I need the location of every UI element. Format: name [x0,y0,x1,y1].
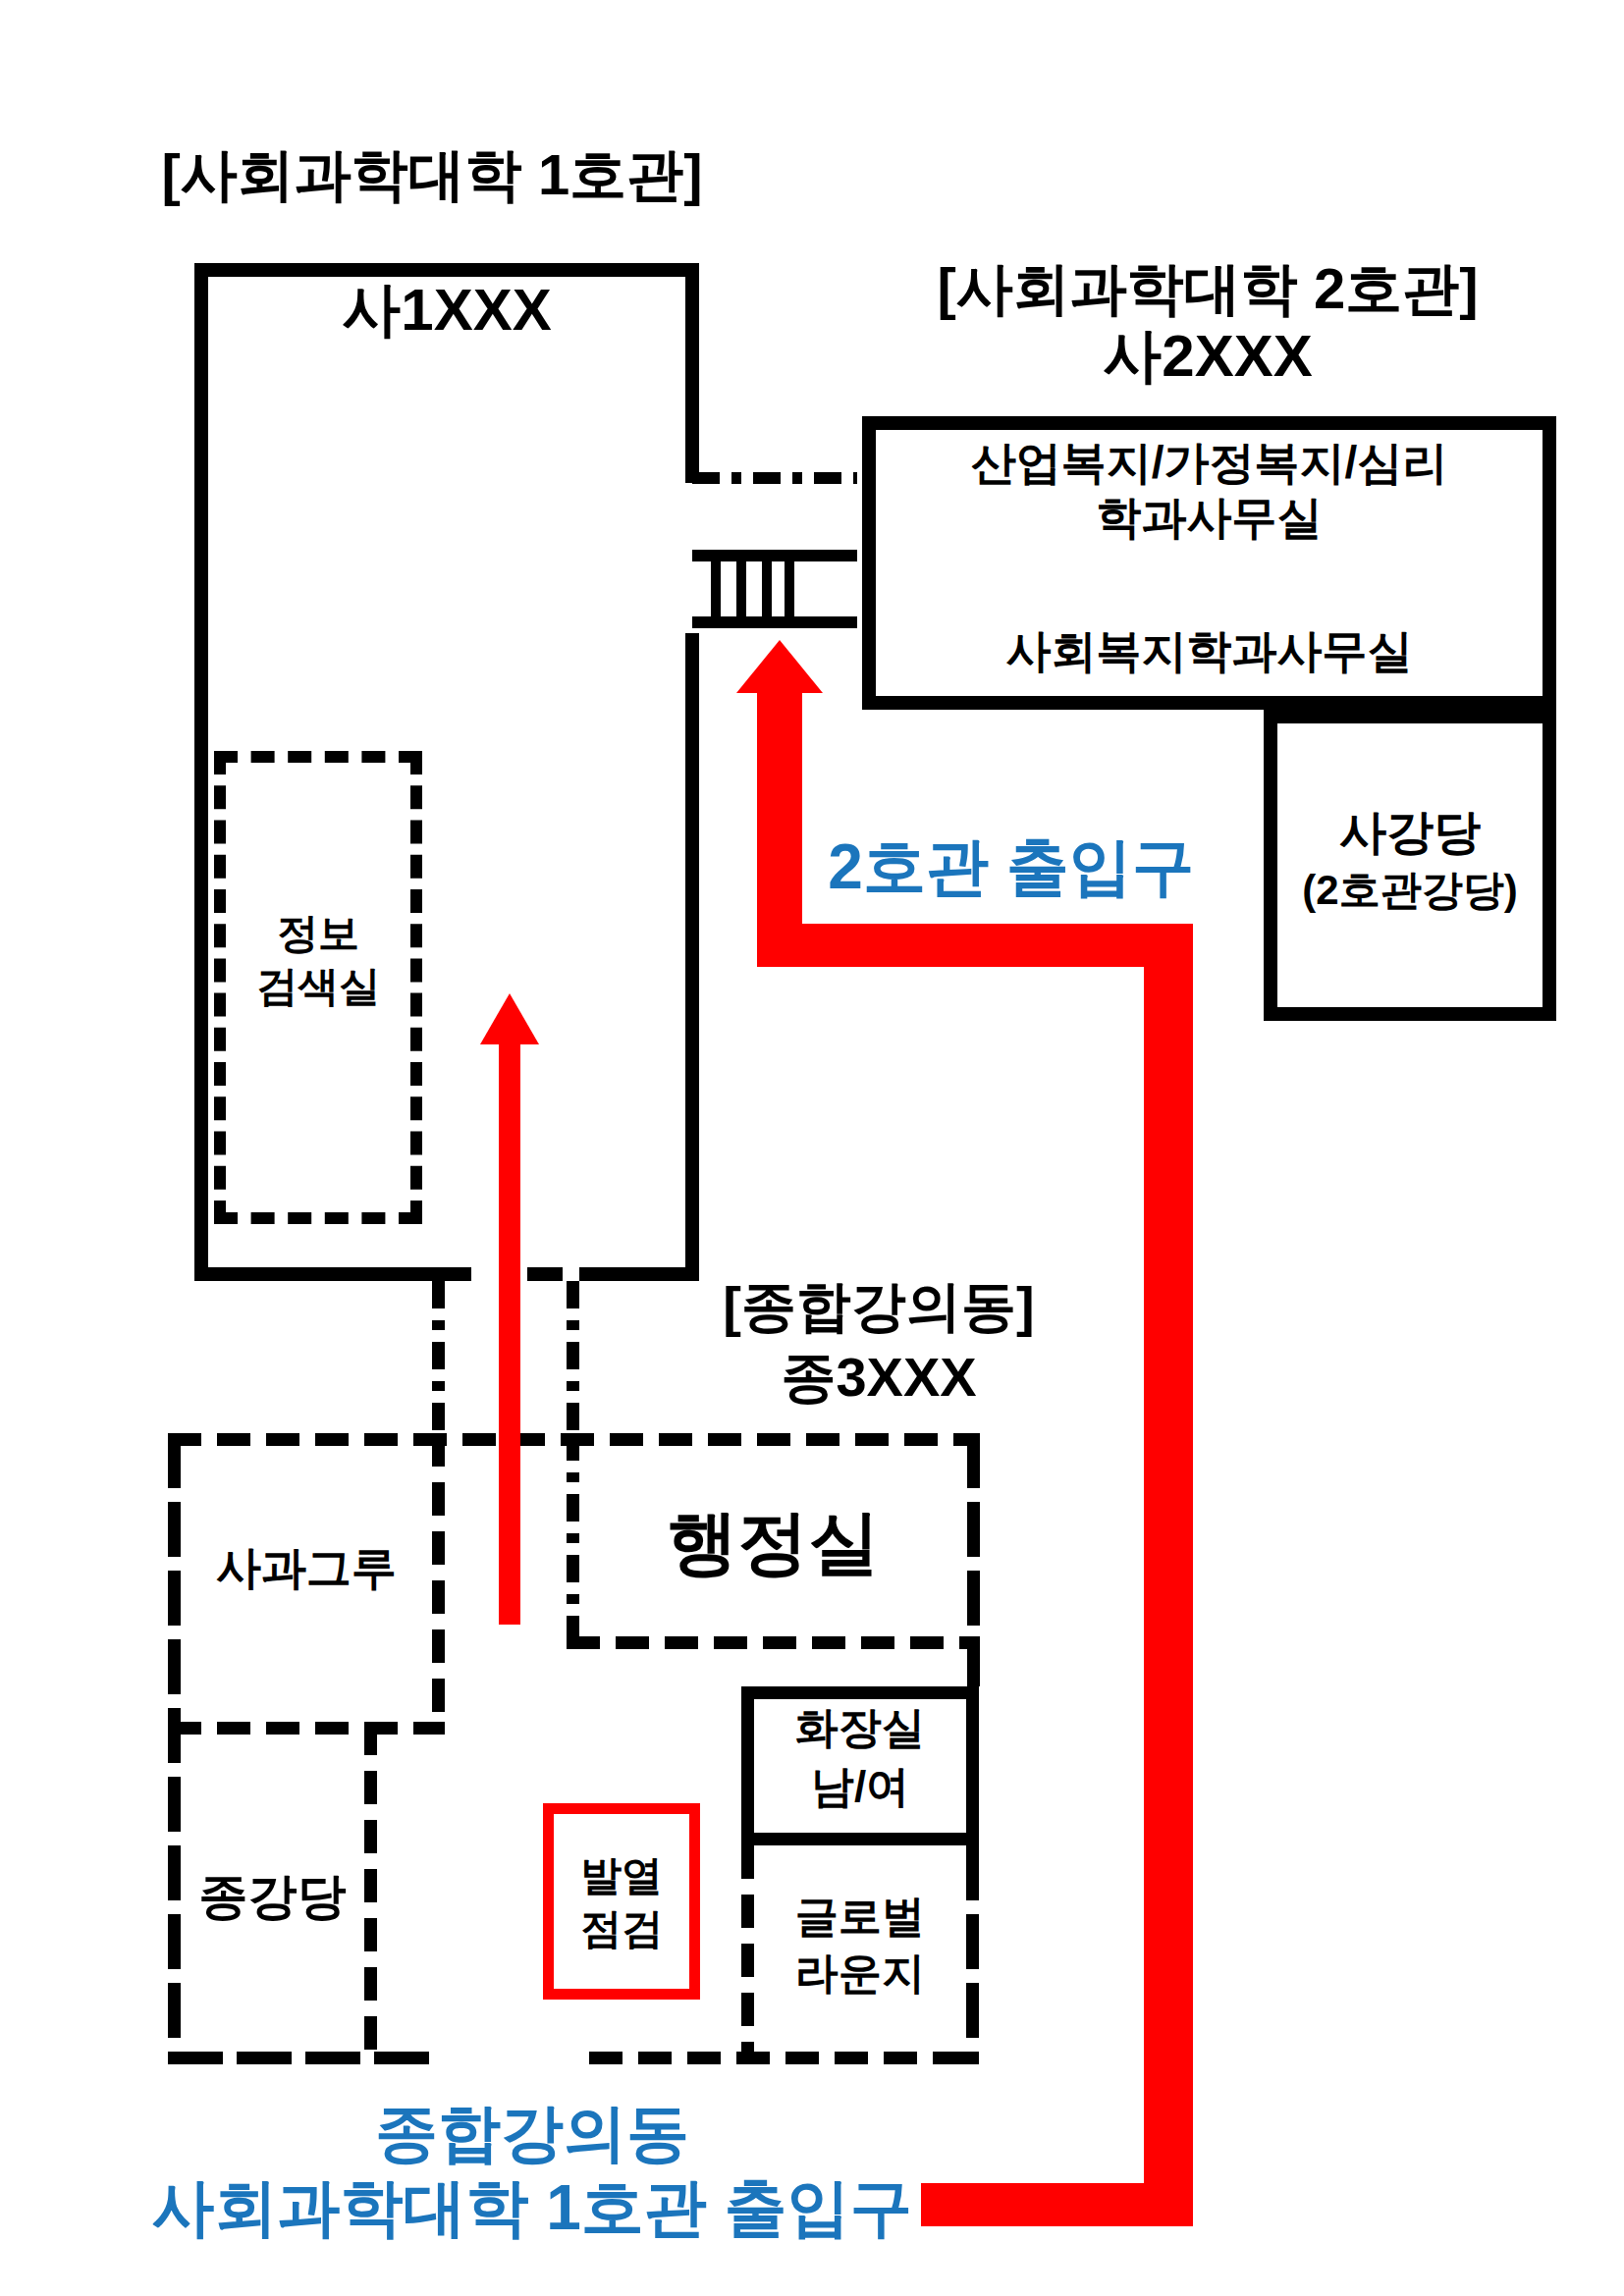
fever-check-box [543,1803,700,2000]
building2-dept-office-line2: 학과사무실 [862,493,1556,543]
connector-corridor-line [692,472,857,484]
hall-bottom-boundary-right [589,2052,982,2064]
stairs-tread-3 [762,550,772,628]
hall-bottom-boundary-left [168,2052,433,2064]
lecture-hall-code: 종3XXX [633,1347,1124,1408]
building1-entrance-label-line2: 사회과학대학 1호관 출입구 [98,2173,966,2242]
jong-auditorium-label: 종강당 [168,1870,377,1924]
lecture-hall-title: [종합강의동] [633,1276,1124,1337]
grove-label: 사과그루 [168,1543,445,1593]
building1-door-dash [527,1267,563,1281]
stairs-tread-4 [785,550,794,628]
building2-entrance-label: 2호관 출입구 [746,832,1276,901]
stairs-tread-1 [711,550,721,628]
building2-auditorium-box [1264,710,1556,1021]
building1-wall-bottom-left [194,1267,471,1281]
lounge-label-line1: 글로벌 [741,1893,979,1940]
arrow-building1-entrance-head [480,993,539,1044]
restroom-label-line2: 남/여 [741,1763,979,1810]
building1-wall-left [194,263,208,1281]
admin-bottom-wall [567,1636,980,1649]
lounge-label-line2: 라운지 [741,1949,979,1997]
restroom-label-line1: 화장실 [741,1704,979,1751]
admin-office-label: 행정실 [567,1504,980,1581]
arrow-building1-entrance-shaft [499,1041,520,1625]
building1-code: 사1XXX [194,278,699,343]
campus-map: [사회과학대학 1호관] 사1XXX 정보 검색실 [사회과학대학 2호관] 사… [0,0,1624,2296]
building2-title: [사회과학대학 2호관] [854,257,1561,320]
corridor-right-line [567,1281,579,1433]
hall-left-boundary [168,1433,181,2064]
fever-check-label-line2: 점검 [543,1906,700,1951]
grove-bottom-wall [168,1722,445,1735]
stairs-tread-2 [736,550,746,628]
building2-welfare-office: 사회복지학과사무실 [862,626,1556,676]
building2-dept-office-line1: 산업복지/가정복지/심리 [862,438,1556,488]
building1-wall-top [194,263,699,277]
building2-auditorium-name: 사강당 [1264,807,1556,859]
arrow-building2-entrance-head [736,640,823,693]
building2-auditorium-sub: (2호관강당) [1264,868,1556,913]
info-room-label-line1: 정보 [214,911,422,956]
fever-check-label-line1: 발열 [543,1853,700,1898]
building1-wall-right-lower [685,633,699,1281]
info-room-label-line2: 검색실 [214,964,422,1009]
building1-title: [사회과학대학 1호관] [108,143,756,206]
route-horizontal-bar [757,924,1193,967]
building2-code: 사2XXX [854,324,1561,389]
route-vertical-bar [1144,924,1193,2226]
building1-entrance-label-line1: 종합강의동 [98,2099,966,2167]
admin-restroom-connector-wall [967,1649,980,1686]
corridor-left-line [432,1281,445,1433]
